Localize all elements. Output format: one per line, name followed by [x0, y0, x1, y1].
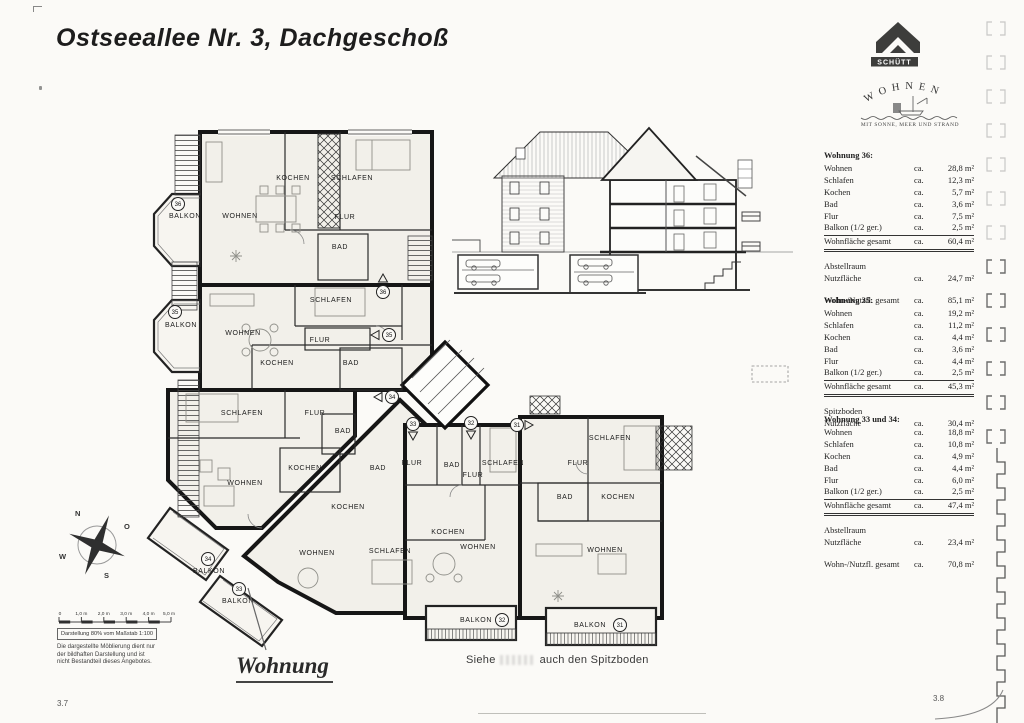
- room-label: FLUR: [310, 337, 331, 344]
- unit-number: 34: [389, 395, 396, 401]
- compass-rose: N O S W: [52, 498, 144, 590]
- bracket-marks-dark: [987, 260, 1005, 443]
- room-label: BALKON: [193, 568, 225, 575]
- room-label: KOCHEN: [276, 175, 310, 182]
- room-label: SCHLAFEN: [331, 175, 373, 182]
- note-part2: auch den Spitzboden: [540, 654, 649, 666]
- room-label: BAD: [343, 360, 359, 367]
- room-label: BAD: [332, 244, 348, 251]
- room-label: KOCHEN: [601, 494, 635, 501]
- scan-bottom-line: [478, 713, 706, 714]
- scanned-page: Ostseeallee Nr. 3, Dachgeschoß SCHÜTT WO…: [0, 0, 1024, 723]
- section-body: [610, 180, 736, 252]
- scale-bar: 0 1,0 m 2,0 m 3,0 m 4,0 m 5,0 m: [57, 610, 177, 626]
- scan-curve: [935, 690, 1003, 719]
- compass-s: S: [104, 571, 109, 580]
- page-number-left: 3.7: [57, 699, 68, 708]
- room-label: BALKON: [169, 213, 201, 220]
- balcony-rail-hatch: [546, 633, 656, 645]
- room-label: SCHLAFEN: [589, 435, 631, 442]
- scale-tick-label: 5,0 m: [163, 611, 175, 617]
- unit-number: 32: [499, 618, 506, 624]
- binding-marks: [900, 0, 1024, 723]
- note-part1: Siehe: [466, 654, 496, 666]
- roof-windows: [738, 160, 752, 188]
- room-label: SCHLAFEN: [310, 297, 352, 304]
- room-label: FLUR: [335, 214, 356, 221]
- unit-number: 32: [468, 421, 475, 427]
- room-label: KOCHEN: [260, 360, 294, 367]
- disclaimer: Die dargestellte Möblierung dient nur de…: [57, 644, 187, 667]
- room-label: SCHLAFEN: [221, 410, 263, 417]
- retaining-wall: [452, 240, 480, 252]
- room-label: WOHNEN: [299, 550, 335, 557]
- perforation-zigzag: [997, 448, 1005, 723]
- scan-corner-mark: [33, 6, 42, 12]
- scale-tick-label: 2,0 m: [98, 611, 110, 617]
- unit-number: 31: [617, 623, 624, 629]
- room-label: WOHNEN: [222, 213, 258, 220]
- disclaimer-line: Die dargestellte Möblierung dient nur: [57, 644, 187, 652]
- disclaimer-line: der bildhaften Darstellung und ist: [57, 652, 187, 660]
- room-label: FLUR: [568, 460, 589, 467]
- garage-mid: [570, 255, 638, 293]
- annotation-leader: [243, 586, 273, 656]
- room-label: BAD: [444, 462, 460, 469]
- room-label: BAD: [335, 428, 351, 435]
- scan-dot-mark: [39, 86, 42, 90]
- dashed-detail: [752, 366, 788, 382]
- room-label: KOCHEN: [431, 529, 465, 536]
- page-title: Ostseeallee Nr. 3, Dachgeschoß: [56, 24, 449, 53]
- room-label: SCHLAFEN: [482, 460, 524, 467]
- unit-number: 36: [380, 290, 387, 296]
- unit-number: 33: [236, 587, 243, 593]
- room-label: BALKON: [460, 617, 492, 624]
- room-label: WOHNEN: [587, 547, 623, 554]
- faded-text: [500, 655, 536, 665]
- scale-tick-label: 3,0 m: [120, 611, 132, 617]
- roof-hatch: [656, 426, 692, 470]
- building-section: [450, 112, 795, 307]
- room-label: BAD: [557, 494, 573, 501]
- garage-left: [458, 255, 538, 289]
- roof-hatch: [530, 396, 560, 414]
- room-label: BALKON: [574, 622, 606, 629]
- room-label: KOCHEN: [331, 504, 365, 511]
- room-label: SCHLAFEN: [369, 548, 411, 555]
- balcony-rail-hatch: [426, 629, 516, 640]
- room-label: FLUR: [402, 460, 423, 467]
- side-balconies: [742, 212, 760, 251]
- scale-tick-label: 4,0 m: [143, 611, 155, 617]
- compass-n: N: [75, 509, 80, 518]
- bracket-marks-light: [987, 22, 1005, 239]
- room-label: BALKON: [165, 322, 197, 329]
- room-label: FLUR: [305, 410, 326, 417]
- scale-tick-label: 1,0 m: [75, 611, 87, 617]
- unit-number: 33: [410, 422, 417, 428]
- scale-labels: 0 1,0 m 2,0 m 3,0 m 4,0 m 5,0 m: [59, 611, 175, 617]
- dormer: [516, 148, 525, 159]
- compass-star: [57, 504, 137, 586]
- disclaimer-line: nicht Bestandteil dieses Angebotes.: [57, 659, 187, 667]
- room-label: WOHNEN: [460, 544, 496, 551]
- room-label: WOHNEN: [227, 480, 263, 487]
- scale-note: Darstellung 80% vom Maßstab 1:100: [57, 628, 157, 640]
- unit-number: 35: [386, 333, 393, 339]
- unit-number: 31: [514, 423, 521, 429]
- annotation-wohnung: Wohnung: [236, 653, 333, 683]
- spitzboden-note: Siehe auch den Spitzboden: [466, 654, 649, 666]
- room-label: FLUR: [463, 472, 484, 479]
- room-label: BAD: [370, 465, 386, 472]
- unit-number: 34: [205, 557, 212, 563]
- room-label: KOCHEN: [288, 465, 322, 472]
- unit-number: 36: [175, 202, 182, 208]
- scale-tick-label: 0: [59, 611, 62, 617]
- unit-number: 35: [172, 310, 179, 316]
- room-label: WOHNEN: [225, 330, 261, 337]
- compass-o: O: [124, 522, 130, 531]
- compass-w: W: [59, 552, 67, 561]
